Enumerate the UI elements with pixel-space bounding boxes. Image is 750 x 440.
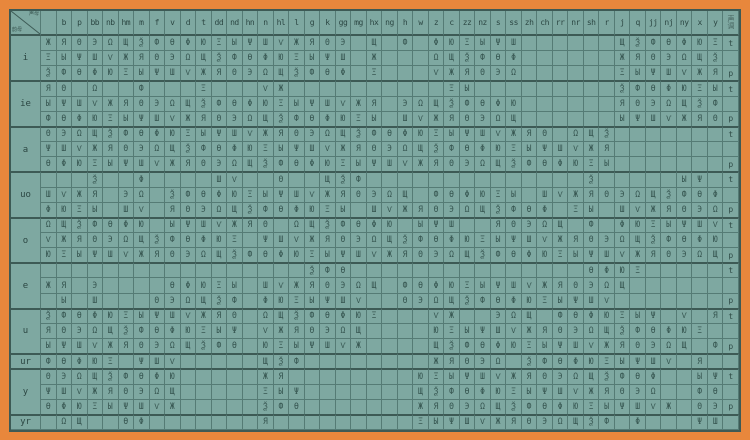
yi-glyph: Я	[356, 145, 361, 153]
syllable-cell: Ѳ	[165, 36, 181, 51]
yi-glyph: Ы	[682, 176, 687, 184]
yi-glyph: Я	[123, 342, 128, 350]
syllable-cell: Ы	[460, 80, 476, 96]
syllable-cell: Ф	[599, 414, 615, 430]
yi-glyph: Я	[247, 221, 252, 229]
syllable-cell	[367, 368, 383, 384]
syllable-cell: Ш	[475, 368, 491, 384]
syllable-cell	[413, 353, 429, 369]
yi-glyph: Я	[216, 69, 221, 77]
syllable-cell	[506, 80, 522, 96]
yi-glyph: Ѵ	[527, 281, 532, 289]
syllable-cell: Я	[212, 308, 228, 324]
syllable-cell	[413, 66, 429, 81]
syllable-cell: Φ	[444, 233, 460, 248]
tone-cell	[723, 188, 739, 203]
yi-glyph: Ы	[604, 403, 609, 411]
syllable-cell: Φ	[150, 368, 166, 384]
syllable-cell: Ѯ	[103, 126, 119, 142]
yi-glyph: Ж	[294, 39, 299, 47]
yi-glyph: Ы	[465, 327, 470, 335]
syllable-cell: Φ	[88, 66, 104, 81]
yi-glyph: Ω	[108, 39, 113, 47]
yi-glyph: Я	[635, 54, 640, 62]
syllable-cell: Ω	[568, 368, 584, 384]
yi-glyph: Э	[542, 418, 547, 426]
syllable-cell	[506, 171, 522, 187]
syllable-cell	[708, 171, 724, 187]
syllable-cell: Ξ	[212, 36, 228, 51]
yi-glyph: Ш	[46, 190, 51, 198]
syllable-cell: Θ	[336, 233, 352, 248]
syllable-cell: Ф	[320, 262, 336, 278]
yi-glyph: Ѯ	[449, 342, 454, 350]
yi-glyph: Ψ	[496, 39, 501, 47]
yi-glyph: Ψ	[465, 373, 470, 381]
yi-glyph: Ю	[232, 190, 237, 198]
yi-glyph: Ѳ	[713, 387, 718, 395]
syllable-cell: Ы	[196, 126, 212, 142]
yi-glyph: Э	[666, 54, 671, 62]
syllable-cell: Ѳ	[444, 188, 460, 203]
syllable-cell: Ψ	[444, 414, 460, 430]
syllable-cell: Ф	[661, 233, 677, 248]
syllable-cell: Ш	[258, 278, 274, 293]
syllable-cell: Ѵ	[708, 217, 724, 233]
yi-glyph: Ѵ	[247, 130, 252, 138]
syllable-cell	[367, 171, 383, 187]
yi-glyph: Щ	[123, 39, 128, 47]
syllable-cell	[522, 66, 538, 81]
syllable-cell: Ш	[274, 233, 290, 248]
syllable-cell: Ф	[460, 339, 476, 354]
syllable-cell: Ф	[134, 80, 150, 96]
yi-glyph: Φ	[139, 418, 144, 426]
syllable-cell	[475, 262, 491, 278]
yi-glyph: Ы	[108, 160, 113, 168]
syllable-cell	[599, 51, 615, 66]
yi-glyph: Θ	[77, 39, 82, 47]
syllable-cell: Э	[119, 188, 135, 203]
syllable-cell: Ш	[646, 112, 662, 127]
yi-glyph: Ѳ	[635, 373, 640, 381]
yi-glyph: Ы	[356, 160, 361, 168]
yi-glyph: Я	[123, 99, 128, 107]
syllable-cell	[398, 353, 414, 369]
yi-glyph: Я	[449, 358, 454, 366]
yi-glyph: Θ	[61, 327, 66, 335]
tone-cell: t	[723, 217, 739, 233]
syllable-cell: Ф	[413, 233, 429, 248]
syllable-cell	[41, 414, 57, 430]
yi-glyph: Э	[682, 251, 687, 259]
syllable-cell: Ж	[88, 385, 104, 400]
syllable-cell: Ѯ	[692, 97, 708, 112]
consonant-header-ch: ch	[537, 11, 553, 36]
yi-glyph: Щ	[216, 251, 221, 259]
syllable-cell	[382, 36, 398, 51]
yi-glyph: Ф	[651, 39, 656, 47]
syllable-cell	[661, 157, 677, 172]
yi-glyph: Э	[496, 312, 501, 320]
yi-glyph: Ю	[682, 327, 687, 335]
syllable-cell: Ѵ	[274, 36, 290, 51]
yi-glyph: Θ	[573, 281, 578, 289]
yi-glyph: Ѵ	[496, 373, 501, 381]
yi-glyph: Я	[527, 373, 532, 381]
syllable-cell: Ш	[444, 217, 460, 233]
yi-glyph: Φ	[232, 145, 237, 153]
yi-glyph: Ѵ	[154, 403, 159, 411]
yi-glyph: Щ	[713, 251, 718, 259]
syllable-cell	[413, 262, 429, 278]
yi-glyph: Ω	[403, 145, 408, 153]
syllable-cell	[227, 80, 243, 96]
syllable-cell: Ω	[475, 400, 491, 415]
syllable-cell: Φ	[599, 262, 615, 278]
syllable-cell: Ы	[429, 414, 445, 430]
syllable-cell: Ш	[367, 203, 383, 218]
syllable-cell: Ы	[103, 400, 119, 415]
yi-glyph: Я	[511, 418, 516, 426]
syllable-cell: Ш	[553, 385, 569, 400]
syllable-cell: Ξ	[88, 400, 104, 415]
yi-glyph: Э	[480, 358, 485, 366]
yi-glyph: Щ	[589, 130, 594, 138]
yi-glyph: Ж	[201, 312, 206, 320]
yi-glyph: Ф	[232, 54, 237, 62]
syllable-cell	[382, 308, 398, 324]
syllable-cell	[599, 203, 615, 218]
syllable-cell: Щ	[258, 112, 274, 127]
syllable-cell: Э	[568, 324, 584, 339]
syllable-cell: Ѵ	[305, 188, 321, 203]
consonant-header-hm: hm	[119, 11, 135, 36]
yi-glyph: Ф	[216, 342, 221, 350]
syllable-cell: Ѵ	[336, 97, 352, 112]
syllable-cell: Ж	[398, 203, 414, 218]
syllable-cell: Ѵ	[413, 112, 429, 127]
syllable-cell: Φ	[506, 294, 522, 309]
syllable-cell: Ω	[398, 142, 414, 157]
syllable-cell: Я	[212, 66, 228, 81]
syllable-cell: Ѳ	[584, 262, 600, 278]
syllable-cell	[537, 36, 553, 51]
syllable-cell: Θ	[692, 400, 708, 415]
syllable-cell: Ψ	[584, 248, 600, 263]
yi-glyph: Э	[527, 221, 532, 229]
syllable-cell: Ю	[258, 339, 274, 354]
syllable-cell: Ψ	[630, 353, 646, 369]
syllable-cell	[444, 171, 460, 187]
syllable-cell: Ф	[444, 142, 460, 157]
syllable-cell	[537, 308, 553, 324]
syllable-cell	[522, 262, 538, 278]
syllable-cell: Φ	[491, 97, 507, 112]
yi-glyph: Ѯ	[263, 160, 268, 168]
yi-glyph: Ξ	[620, 312, 625, 320]
syllable-cell: Щ	[212, 248, 228, 263]
yi-glyph: Я	[434, 160, 439, 168]
yi-glyph: Ξ	[216, 39, 221, 47]
yi-glyph: Ю	[170, 130, 175, 138]
syllable-cell	[351, 51, 367, 66]
syllable-cell: Щ	[630, 233, 646, 248]
syllable-cell: Ф	[243, 248, 259, 263]
yi-glyph: Ю	[279, 54, 284, 62]
tone-cell: p	[723, 66, 739, 81]
yi-glyph: Я	[558, 281, 563, 289]
syllable-cell	[72, 80, 88, 96]
syllable-cell: Ж	[661, 400, 677, 415]
yi-glyph: Ξ	[465, 281, 470, 289]
yi-glyph: Ш	[232, 130, 237, 138]
yi-glyph: Ѵ	[123, 251, 128, 259]
syllable-cell	[661, 262, 677, 278]
syllable-cell: Ш	[584, 294, 600, 309]
yi-glyph: Ф	[294, 358, 299, 366]
syllable-cell: Ф	[274, 157, 290, 172]
syllable-cell: Ψ	[41, 142, 57, 157]
syllable-cell: Щ	[134, 233, 150, 248]
yi-glyph: Э	[170, 296, 175, 304]
syllable-cell	[165, 414, 181, 430]
yi-glyph: Θ	[449, 160, 454, 168]
yi-glyph: Ѵ	[77, 145, 82, 153]
yi-glyph: Ѵ	[294, 236, 299, 244]
tone-cell: t	[723, 368, 739, 384]
syllable-cell: Щ	[398, 188, 414, 203]
yi-glyph: Ψ	[92, 251, 97, 259]
syllable-cell: Э	[646, 339, 662, 354]
tone-cell	[723, 324, 739, 339]
yi-glyph: Ω	[201, 251, 206, 259]
syllable-cell: Ж	[320, 188, 336, 203]
syllable-cell: Ѵ	[367, 248, 383, 263]
yi-glyph: Ѵ	[682, 312, 687, 320]
yi-glyph: Θ	[449, 403, 454, 411]
syllable-cell: Ѯ	[429, 385, 445, 400]
syllable-cell: Ж	[305, 233, 321, 248]
syllable-cell: Θ	[212, 112, 228, 127]
yi-glyph: Ф	[123, 373, 128, 381]
yi-glyph: Ѵ	[170, 115, 175, 123]
yi-glyph: Ψ	[123, 160, 128, 168]
syllable-cell: Θ	[320, 278, 336, 293]
yi-glyph: Ω	[480, 160, 485, 168]
syllable-cell: Ξ	[258, 142, 274, 157]
yi-glyph: Ш	[356, 251, 361, 259]
syllable-cell: Ф	[677, 188, 693, 203]
yi-glyph: Ш	[325, 342, 330, 350]
yi-glyph: Ж	[403, 206, 408, 214]
syllable-cell: Щ	[227, 203, 243, 218]
yi-glyph: Ѵ	[558, 190, 563, 198]
syllable-cell: Ю	[491, 385, 507, 400]
yi-glyph: Ф	[418, 236, 423, 244]
syllable-cell: Ѵ	[274, 278, 290, 293]
syllable-cell: Θ	[150, 294, 166, 309]
syllable-cell: Ω	[196, 248, 212, 263]
syllable-cell: Ф	[305, 308, 321, 324]
yi-glyph: Ѳ	[77, 69, 82, 77]
syllable-cell: Ы	[444, 368, 460, 384]
yi-glyph: Э	[232, 115, 237, 123]
syllable-cell: Φ	[243, 97, 259, 112]
syllable-cell: Ю	[599, 308, 615, 324]
yi-glyph: Щ	[496, 403, 501, 411]
yi-glyph: Щ	[325, 176, 330, 184]
syllable-cell: Щ	[522, 308, 538, 324]
yi-glyph: Я	[170, 206, 175, 214]
yi-glyph: Φ	[185, 39, 190, 47]
syllable-cell: Ѵ	[584, 339, 600, 354]
yi-glyph: Щ	[573, 418, 578, 426]
syllable-cell	[398, 80, 414, 96]
syllable-cell: Я	[708, 308, 724, 324]
consonant-header-n: n	[258, 11, 274, 36]
syllable-cell: Φ	[615, 217, 631, 233]
syllable-cell: Ѯ	[506, 400, 522, 415]
syllable-cell: Ѯ	[289, 308, 305, 324]
syllable-cell	[708, 294, 724, 309]
yi-glyph: Щ	[108, 327, 113, 335]
vowel-label-u: u	[11, 308, 41, 354]
syllable-cell: Щ	[584, 368, 600, 384]
syllable-cell: Ω	[72, 126, 88, 142]
yi-glyph: Э	[139, 387, 144, 395]
yi-glyph: Ю	[465, 236, 470, 244]
syllable-cell: Я	[568, 233, 584, 248]
yi-glyph: Ѵ	[403, 160, 408, 168]
yi-glyph: Ф	[465, 99, 470, 107]
yi-glyph: Ѳ	[310, 115, 315, 123]
yi-glyph: Ф	[325, 267, 330, 275]
syllable-cell: Щ	[351, 324, 367, 339]
yi-glyph: Ψ	[263, 236, 268, 244]
syllable-cell: Ж	[491, 414, 507, 430]
yi-glyph: Ы	[294, 342, 299, 350]
syllable-cell: Θ	[615, 385, 631, 400]
yi-glyph: Ѯ	[325, 221, 330, 229]
yi-glyph: Ψ	[154, 69, 159, 77]
yi-glyph: Ф	[294, 115, 299, 123]
syllable-cell: Ю	[413, 126, 429, 142]
yi-glyph: Ψ	[185, 221, 190, 229]
yi-glyph: Щ	[589, 373, 594, 381]
syllable-cell	[398, 262, 414, 278]
syllable-cell: Ж	[537, 278, 553, 293]
syllable-cell: Ψ	[491, 278, 507, 293]
syllable-cell	[382, 97, 398, 112]
yi-glyph: Ξ	[511, 145, 516, 153]
yi-glyph: Ш	[263, 281, 268, 289]
syllable-cell: Ы	[212, 324, 228, 339]
tone-cell: p	[723, 400, 739, 415]
syllable-cell: Ю	[677, 324, 693, 339]
syllable-cell: Ю	[258, 97, 274, 112]
syllable-cell: Ю	[568, 157, 584, 172]
syllable-cell: Ѯ	[274, 112, 290, 127]
syllable-cell: Ω	[181, 294, 197, 309]
syllable-cell: Ξ	[212, 278, 228, 293]
syllable-cell	[367, 324, 383, 339]
syllable-cell: Ѯ	[212, 51, 228, 66]
yi-glyph: Ѵ	[92, 342, 97, 350]
consonant-header-k: k	[320, 11, 336, 36]
syllable-cell: Ξ	[568, 203, 584, 218]
syllable-cell: Ѵ	[41, 233, 57, 248]
syllable-cell: Ѯ	[398, 233, 414, 248]
consonant-header-nj: nj	[661, 11, 677, 36]
yi-glyph: Ψ	[434, 221, 439, 229]
syllable-cell	[491, 171, 507, 187]
syllable-cell: Ѵ	[553, 188, 569, 203]
yi-glyph: Я	[92, 190, 97, 198]
yi-glyph: Ѵ	[77, 387, 82, 395]
yi-glyph: Φ	[682, 39, 687, 47]
yi-glyph: Ж	[604, 342, 609, 350]
yi-glyph: Ѯ	[77, 221, 82, 229]
syllable-cell: Ж	[289, 278, 305, 293]
syllable-cell	[522, 97, 538, 112]
syllable-cell	[150, 414, 166, 430]
yi-glyph: Ж	[418, 403, 423, 411]
syllable-cell: Ω	[692, 248, 708, 263]
syllable-cell	[398, 324, 414, 339]
yi-glyph: Ѵ	[46, 236, 51, 244]
syllable-cell: Ѳ	[57, 112, 73, 127]
vowel-label-o: o	[11, 217, 41, 263]
syllable-cell: Ω	[258, 308, 274, 324]
syllable-cell: Ы	[351, 157, 367, 172]
syllable-cell: Ш	[212, 171, 228, 187]
syllable-cell	[506, 353, 522, 369]
syllable-cell: Ξ	[413, 414, 429, 430]
yi-glyph: Θ	[666, 251, 671, 259]
syllable-cell: Ѳ	[165, 278, 181, 293]
syllable-cell: Я	[72, 233, 88, 248]
syllable-cell: Э	[57, 126, 73, 142]
yi-glyph: Ы	[666, 221, 671, 229]
syllable-cell	[475, 80, 491, 96]
syllable-cell: Θ	[57, 80, 73, 96]
syllable-cell	[599, 217, 615, 233]
yi-glyph: Ж	[279, 85, 284, 93]
syllable-cell	[692, 339, 708, 354]
yi-glyph: Ш	[558, 387, 563, 395]
syllable-cell	[708, 157, 724, 172]
yi-glyph: Я	[279, 130, 284, 138]
syllable-cell	[289, 368, 305, 384]
yi-glyph: Э	[651, 99, 656, 107]
syllable-cell: Ю	[630, 217, 646, 233]
yi-glyph: Ш	[263, 39, 268, 47]
yi-glyph: Ы	[465, 85, 470, 93]
yi-glyph: Ы	[480, 281, 485, 289]
syllable-cell: Ѵ	[103, 51, 119, 66]
syllable-cell	[630, 294, 646, 309]
syllable-cell: Э	[181, 248, 197, 263]
yi-glyph: Ѳ	[496, 54, 501, 62]
yi-glyph: Ω	[496, 115, 501, 123]
syllable-cell: Ѵ	[134, 203, 150, 218]
yi-glyph: Ω	[92, 327, 97, 335]
syllable-cell: Ѵ	[181, 66, 197, 81]
syllable-cell	[382, 353, 398, 369]
yi-glyph: Ф	[465, 342, 470, 350]
syllable-cell: Ψ	[150, 66, 166, 81]
